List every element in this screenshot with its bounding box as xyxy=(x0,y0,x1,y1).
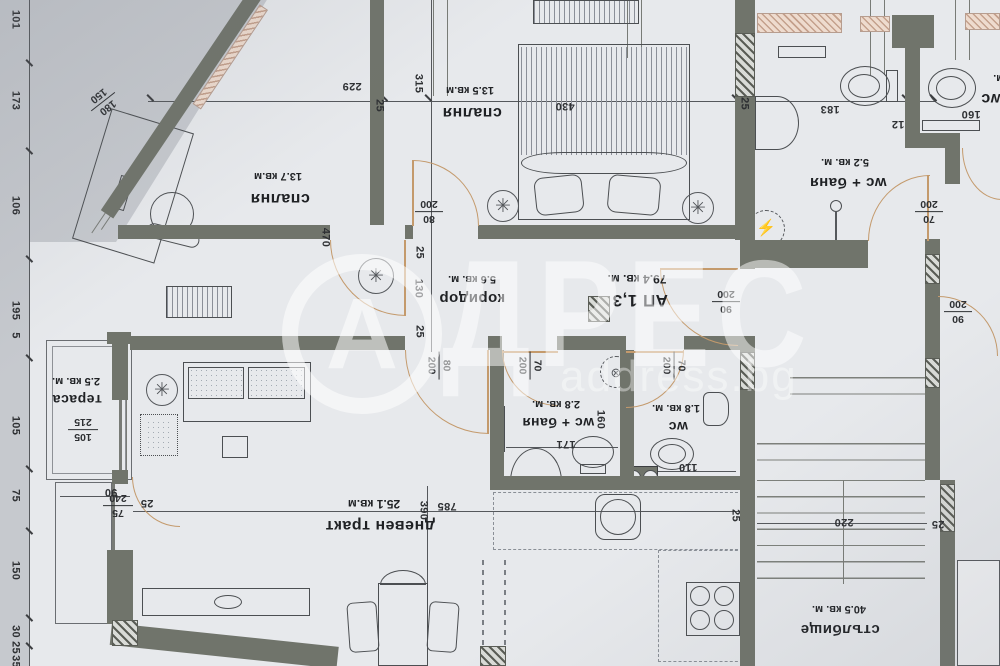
room-label-stairs: стълбище xyxy=(775,622,905,637)
wall xyxy=(490,350,504,476)
wall xyxy=(130,336,405,350)
stove-burner xyxy=(714,586,734,606)
window-mullion xyxy=(447,0,448,96)
dim-chain: 173 xyxy=(10,84,21,118)
room-area: 2.5 кв. м. xyxy=(31,375,121,386)
room-label-wc-mid: wc xyxy=(653,420,703,434)
room-label-terrace: тераса xyxy=(32,393,122,407)
wall xyxy=(945,148,960,184)
dimension-line xyxy=(29,0,30,666)
door-leaf xyxy=(404,240,406,316)
door-arc-wc-right xyxy=(962,148,1000,200)
stove-burner xyxy=(690,586,710,606)
wall xyxy=(905,133,960,148)
dim-80-200: 80200 xyxy=(415,198,443,225)
dim-229: 229 xyxy=(332,80,372,91)
room-label-bedroom1: спалня xyxy=(225,190,335,206)
dim-chain: 105 xyxy=(10,409,21,443)
room-label-apartment: АП 1,3 xyxy=(585,292,695,309)
dim-25: 25 xyxy=(739,93,750,115)
dim-110: 110 xyxy=(670,461,706,472)
wall xyxy=(107,550,133,624)
dim-25: 25 xyxy=(926,518,950,529)
stair-treads xyxy=(757,428,925,474)
chandelier-icon: ✳ xyxy=(487,190,519,222)
dim-315: 315 xyxy=(413,64,424,104)
dim-chain: 75 xyxy=(10,479,21,513)
dim-90-200: 90200 xyxy=(944,298,972,325)
wall xyxy=(735,0,755,33)
wall xyxy=(488,336,502,350)
room-area: 1.8 кв. м. xyxy=(631,402,721,413)
room-label-bedroom2: спалня xyxy=(417,104,527,120)
dim-chain: 35 xyxy=(10,645,21,666)
sofa-cushion xyxy=(188,367,244,399)
stove-burner xyxy=(714,610,734,630)
door-leaf xyxy=(660,268,738,270)
dim-171: 171 xyxy=(548,438,584,449)
dim-25: 25 xyxy=(730,505,741,527)
stair-treads xyxy=(757,480,925,585)
dim-25: 25 xyxy=(374,95,385,117)
wall-hatch xyxy=(735,33,755,97)
room-label-corridor: коридор xyxy=(417,291,527,306)
window-sill-hatch xyxy=(757,13,842,33)
room-area: 25.1 кв.м xyxy=(329,498,419,510)
window-sill-hatch xyxy=(860,16,890,32)
window-mullion xyxy=(955,0,956,60)
dim-25: 25 xyxy=(414,321,425,343)
dim-430: 430 xyxy=(545,100,585,111)
dim-80-200: 80200 xyxy=(425,352,452,380)
window xyxy=(957,560,1000,666)
wall-hatch xyxy=(740,352,755,390)
chandelier-glyph: ✳ xyxy=(495,197,511,216)
dim-25: 25 xyxy=(414,242,425,264)
dim-390: 390 xyxy=(418,493,429,529)
window-mullion xyxy=(969,0,970,60)
wall xyxy=(110,623,339,666)
floor-lamp-stem xyxy=(835,212,837,240)
chandelier-icon: ✳ xyxy=(146,374,178,406)
wall xyxy=(112,340,128,400)
stair-stringer xyxy=(843,480,844,584)
toilet-bowl xyxy=(848,74,880,98)
dim-160: 160 xyxy=(953,108,989,119)
chandelier-glyph: ✳ xyxy=(690,199,706,218)
dim-220: 220 xyxy=(826,516,862,527)
dim-785: 785 xyxy=(428,500,466,511)
sofa-cushion xyxy=(248,367,305,399)
bed-sheet xyxy=(521,152,687,174)
dim-70-200: 70200 xyxy=(660,352,687,380)
shelf xyxy=(166,286,232,318)
wall-hatch xyxy=(925,254,940,284)
dim-105-215: 105215 xyxy=(68,416,98,443)
dim-90-200: 90200 xyxy=(712,288,740,315)
column-hatch xyxy=(480,646,506,666)
window-mullion xyxy=(870,0,871,75)
chandelier-icon: ✳ xyxy=(682,192,714,224)
room-area: 79.4 кв. м. xyxy=(592,273,682,285)
pillow xyxy=(606,174,661,216)
room-label-living: дневен тракт xyxy=(300,517,460,533)
floorplan-photo: ✳ ✳ ✳ ⚡ ⊗ ✳ xyxy=(0,0,1000,666)
wall xyxy=(478,225,755,239)
dim-183: 183 xyxy=(812,103,848,114)
wall xyxy=(740,345,755,666)
pillow xyxy=(533,174,585,217)
dim-chain: 101 xyxy=(10,3,21,37)
wall xyxy=(755,240,868,268)
room-area: 5.6 кв. м. xyxy=(427,273,517,284)
toilet-tank xyxy=(580,464,606,474)
wardrobe xyxy=(533,0,639,24)
door-leaf xyxy=(487,350,489,434)
window-sill-hatch xyxy=(965,13,1000,30)
grid-dashed-line xyxy=(504,560,506,646)
room-label-wc-right: wc xyxy=(962,90,1000,106)
washbasin xyxy=(755,96,799,150)
dining-chair xyxy=(426,601,459,653)
wall-header xyxy=(892,15,934,48)
wall xyxy=(112,470,128,484)
dim-12: 12 xyxy=(886,118,910,129)
window-mullion xyxy=(884,0,885,75)
wall xyxy=(405,225,413,239)
dim-70-200: 70200 xyxy=(915,198,943,225)
dim-70-200: 70200 xyxy=(516,352,543,380)
wall xyxy=(557,336,626,350)
dim-chain: 150 xyxy=(10,554,21,588)
kitchen-sink-bowl xyxy=(600,499,636,535)
room-area: 5.2 кв. м. xyxy=(800,156,890,167)
dining-chair xyxy=(346,601,379,653)
room-area: кв. м. xyxy=(978,72,1000,83)
room-area: 40.5 кв. м. xyxy=(794,603,884,614)
grid-dashed-line xyxy=(482,560,484,646)
toilet-tank xyxy=(886,70,898,102)
room-area: 13.5 кв.м xyxy=(425,84,515,95)
wall xyxy=(118,225,330,239)
dim-25: 25 xyxy=(136,497,158,508)
door-arc-bedroom1 xyxy=(330,240,406,316)
dining-table xyxy=(378,583,428,666)
door-leaf xyxy=(412,160,414,226)
dim-160: 160 xyxy=(595,402,606,438)
towel-rail xyxy=(922,120,980,131)
floor-lamp xyxy=(830,200,842,212)
room-label-bath-top: wc + баня xyxy=(793,175,903,190)
coffee-table xyxy=(222,436,248,458)
dim-470: 470 xyxy=(320,218,331,258)
window-mullion xyxy=(433,0,434,96)
wall xyxy=(740,239,755,269)
electric-glyph: ⚡ xyxy=(756,221,776,237)
towel-rail xyxy=(778,46,826,58)
wall xyxy=(490,476,754,490)
stair-treads xyxy=(790,362,925,404)
stove-burner xyxy=(690,610,710,630)
wall-hatch xyxy=(925,358,940,388)
room-area: 2.8 кв. м. xyxy=(511,398,601,409)
wall-hatch xyxy=(112,620,138,646)
dining-chair xyxy=(380,570,426,585)
dim-75-240: 75240 xyxy=(103,492,133,519)
armchair-seat xyxy=(146,420,172,448)
chandelier-glyph: ✳ xyxy=(154,381,170,400)
dim-130: 130 xyxy=(413,269,424,309)
wall xyxy=(735,97,755,240)
dim-chain: 5 xyxy=(10,319,21,353)
room-area: 13.7 кв.м xyxy=(233,170,323,181)
tv-cabinet-knob xyxy=(214,595,242,609)
dim-chain: 106 xyxy=(10,189,21,223)
